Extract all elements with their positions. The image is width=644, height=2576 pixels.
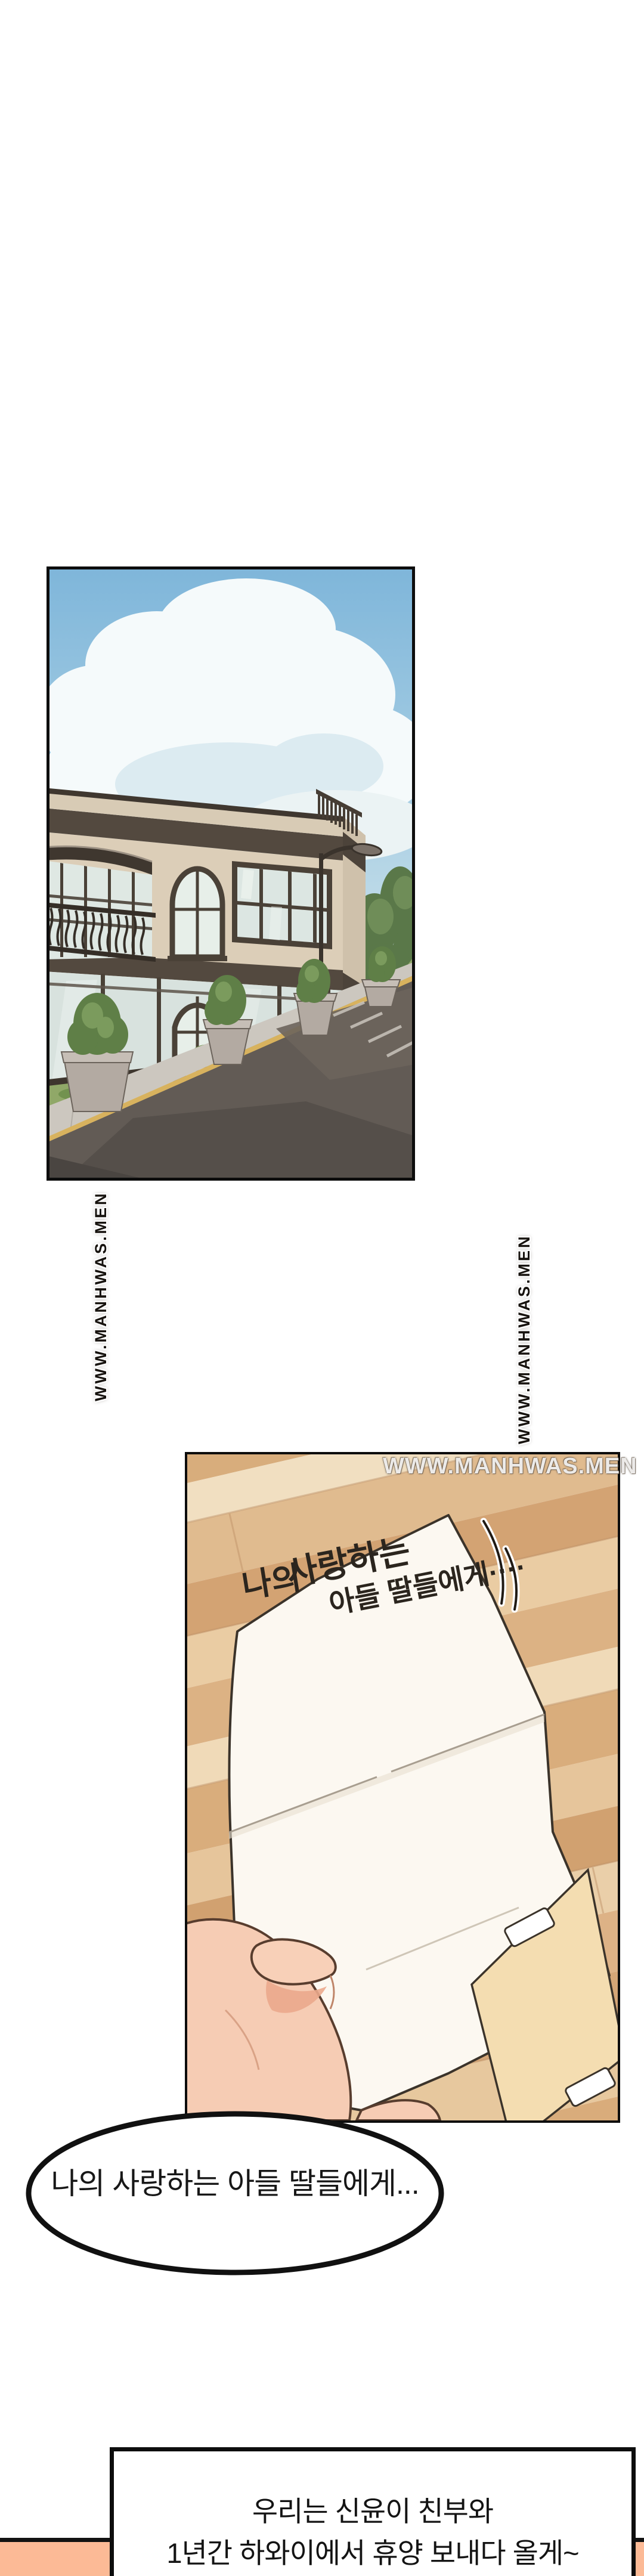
caption-line-1: 우리는 신윤이 친부와 [114, 2491, 631, 2532]
panel-letter: 나의 사랑하는 아들 딸들에게···· [185, 1452, 620, 2123]
window-wall-2f [232, 861, 332, 949]
arched-window-2f [168, 869, 227, 961]
letter-scene: 나의 사랑하는 아들 딸들에게···· [187, 1454, 618, 2120]
panel-building [47, 566, 415, 1181]
comic-page: WWW.MANHWAS.MEN WWW.MANHWAS.MEN WWW.MANH… [0, 0, 644, 2576]
building-scene [49, 569, 412, 1178]
watermark-left: WWW.MANHWAS.MEN [92, 1191, 110, 1401]
caption-line-2: 1년간 하와이에서 휴양 보내다 올게~ [114, 2532, 631, 2574]
watermark-horizontal: WWW.MANHWAS.MEN [383, 1454, 637, 1479]
caption-box: 우리는 신윤이 친부와 1년간 하와이에서 휴양 보내다 올게~ [110, 2447, 636, 2576]
speech-bubble: 나의 사랑하는 아들 딸들에게... [21, 2107, 448, 2279]
watermark-right: WWW.MANHWAS.MEN [515, 1234, 534, 1444]
speech-bubble-text: 나의 사랑하는 아들 딸들에게... [21, 2160, 448, 2203]
